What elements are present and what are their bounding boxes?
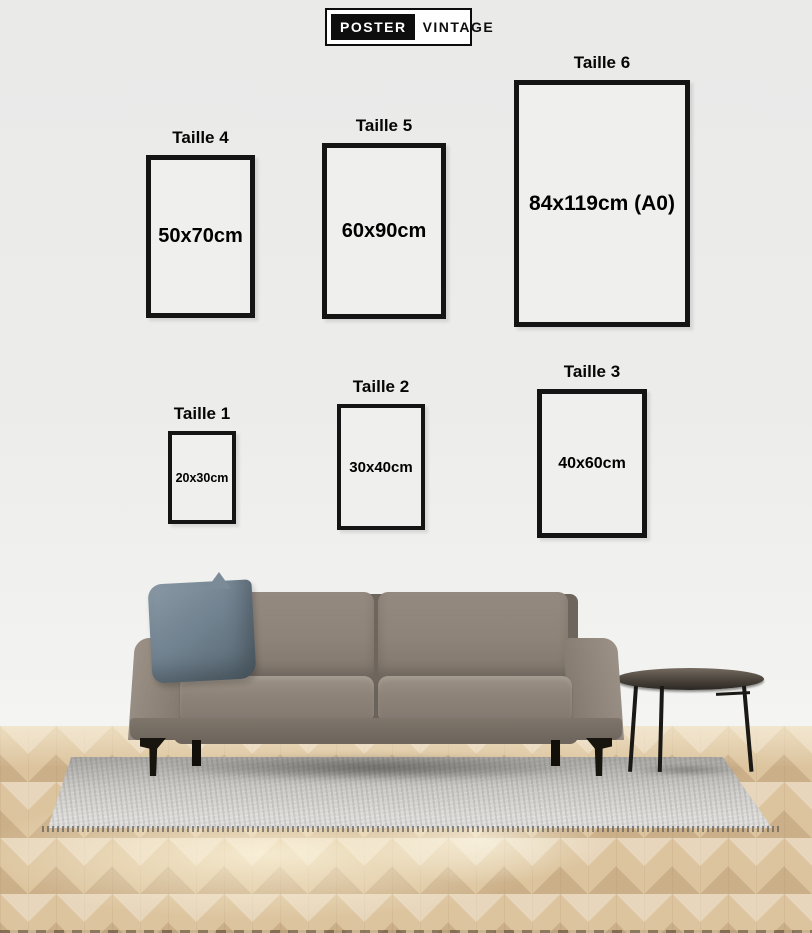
poster-size-guide-image: POSTER VINTAGE Taille 4 50x70cm Taille 5…: [0, 0, 812, 933]
frame-title-taille-1: Taille 1: [174, 404, 230, 424]
poster-frame-taille-3: 40x60cm: [537, 389, 647, 538]
sofa-leg-back-right: [551, 740, 560, 766]
poster-frame-taille-1: 20x30cm: [168, 431, 236, 524]
size-frame-taille-4: Taille 4 50x70cm: [146, 155, 255, 318]
frame-title-taille-6: Taille 6: [574, 53, 630, 73]
brand-logo-poster: POSTER: [331, 14, 415, 40]
size-frame-taille-6: Taille 6 84x119cm (A0): [514, 80, 690, 327]
poster-frame-taille-6: 84x119cm (A0): [514, 80, 690, 327]
sofa: [128, 588, 624, 780]
sofa-back-cushion-right: [378, 592, 568, 678]
poster-frame-taille-2: 30x40cm: [337, 404, 425, 530]
sofa-leg-front-right: [586, 738, 612, 776]
frame-size-taille-2: 30x40cm: [349, 459, 412, 476]
frame-title-taille-3: Taille 3: [564, 362, 620, 382]
brand-logo-vintage: VINTAGE: [415, 14, 497, 40]
sofa-seat-cushion-right: [378, 676, 572, 720]
frame-title-taille-4: Taille 4: [172, 128, 228, 148]
size-frame-taille-5: Taille 5 60x90cm: [322, 143, 446, 319]
frame-size-taille-6: 84x119cm (A0): [529, 192, 675, 216]
side-table-leg: [742, 686, 753, 772]
brand-logo: POSTER VINTAGE: [325, 8, 472, 46]
frame-size-taille-4: 50x70cm: [158, 225, 243, 248]
side-table-leg: [658, 686, 664, 772]
size-frame-taille-1: Taille 1 20x30cm: [168, 431, 236, 524]
sofa-seat-cushion-left: [180, 676, 374, 720]
poster-frame-taille-4: 50x70cm: [146, 155, 255, 318]
size-frame-taille-3: Taille 3 40x60cm: [537, 389, 647, 538]
rug-fringe: [42, 826, 780, 832]
sofa-base: [130, 718, 622, 740]
sofa-leg-front-left: [140, 738, 166, 776]
side-table: [616, 662, 764, 774]
frame-size-taille-3: 40x60cm: [558, 455, 626, 473]
frame-title-taille-2: Taille 2: [353, 377, 409, 397]
size-frame-taille-2: Taille 2 30x40cm: [337, 404, 425, 530]
frame-size-taille-1: 20x30cm: [176, 471, 229, 485]
frame-title-taille-5: Taille 5: [356, 116, 412, 136]
poster-frame-taille-5: 60x90cm: [322, 143, 446, 319]
sofa-leg-back-left: [192, 740, 201, 766]
frame-size-taille-5: 60x90cm: [342, 220, 427, 243]
throw-pillow: [147, 579, 256, 683]
side-table-leg: [628, 686, 638, 772]
